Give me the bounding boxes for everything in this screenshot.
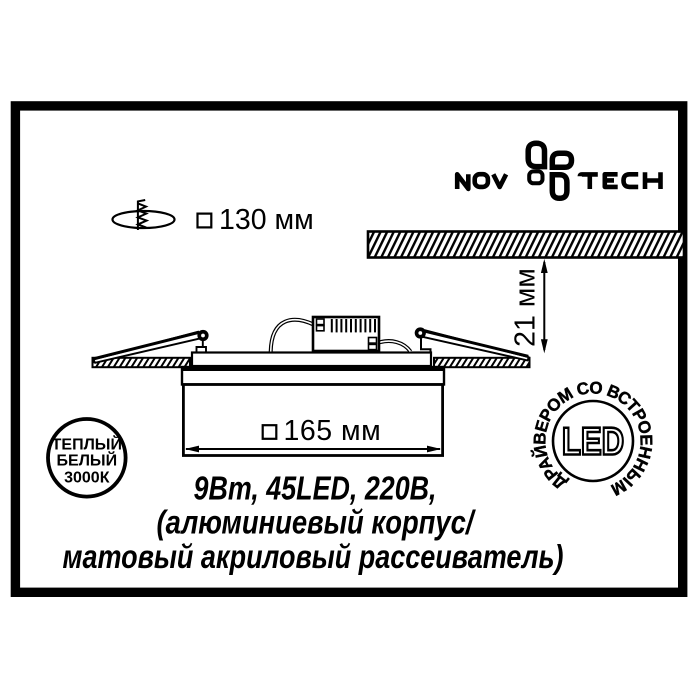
svg-text:матовый акриловый рассеиватель: матовый акриловый рассеиватель) — [63, 538, 564, 575]
svg-text:БЕЛЫЙ: БЕЛЫЙ — [57, 451, 118, 470]
svg-text:165 мм: 165 мм — [284, 415, 382, 447]
svg-text:130 мм: 130 мм — [219, 204, 314, 236]
svg-text:9Вт, 45LED, 220В,: 9Вт, 45LED, 220В, — [194, 470, 437, 507]
svg-text:21 мм: 21 мм — [510, 268, 542, 347]
svg-text:(алюминиевый корпус/: (алюминиевый корпус/ — [157, 504, 477, 541]
svg-text:ТЕПЛЫЙ: ТЕПЛЫЙ — [52, 434, 122, 453]
svg-text:LED: LED — [562, 420, 624, 463]
svg-text:3000К: 3000К — [64, 469, 110, 486]
